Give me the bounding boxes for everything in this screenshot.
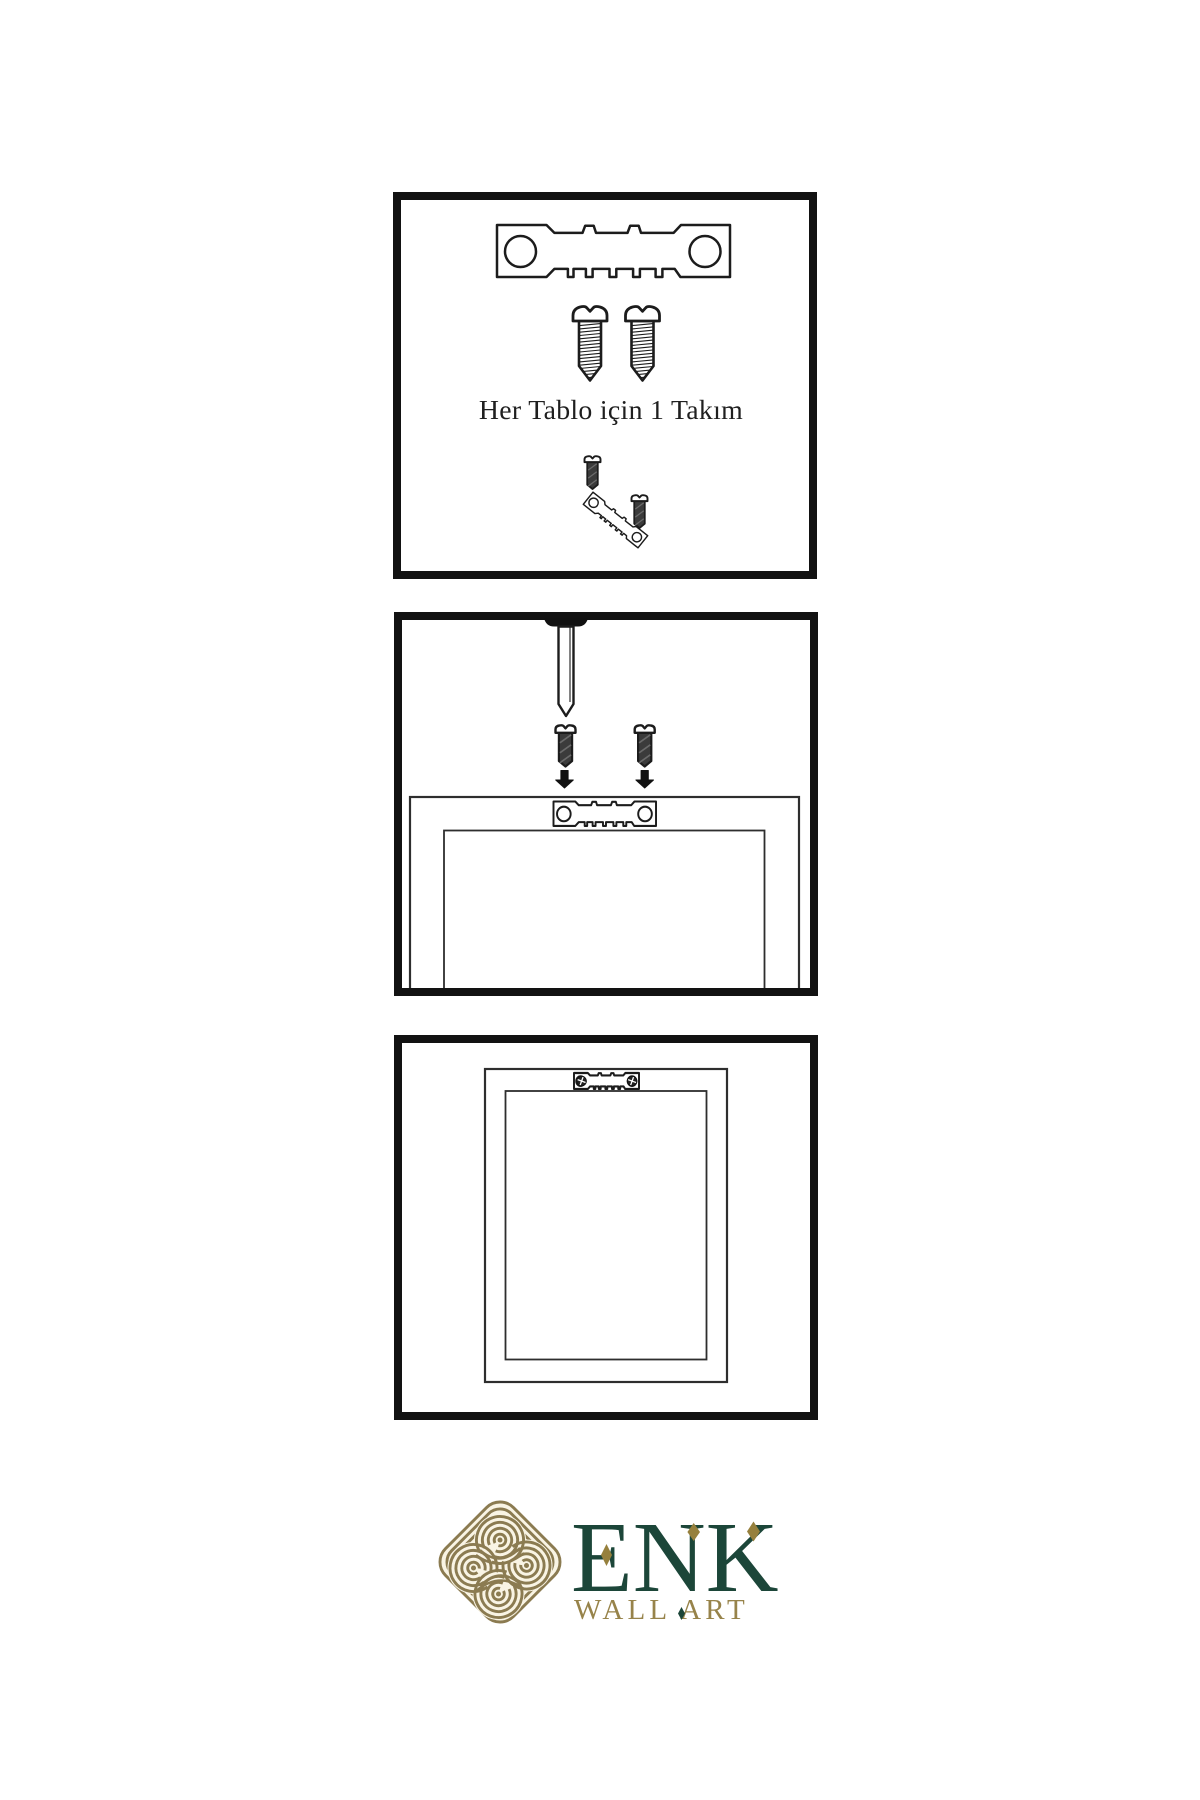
svg-text:WALL ART: WALL ART [574,1594,749,1626]
svg-text:Her Tablo için 1 Takım: Her Tablo için 1 Takım [479,395,743,426]
